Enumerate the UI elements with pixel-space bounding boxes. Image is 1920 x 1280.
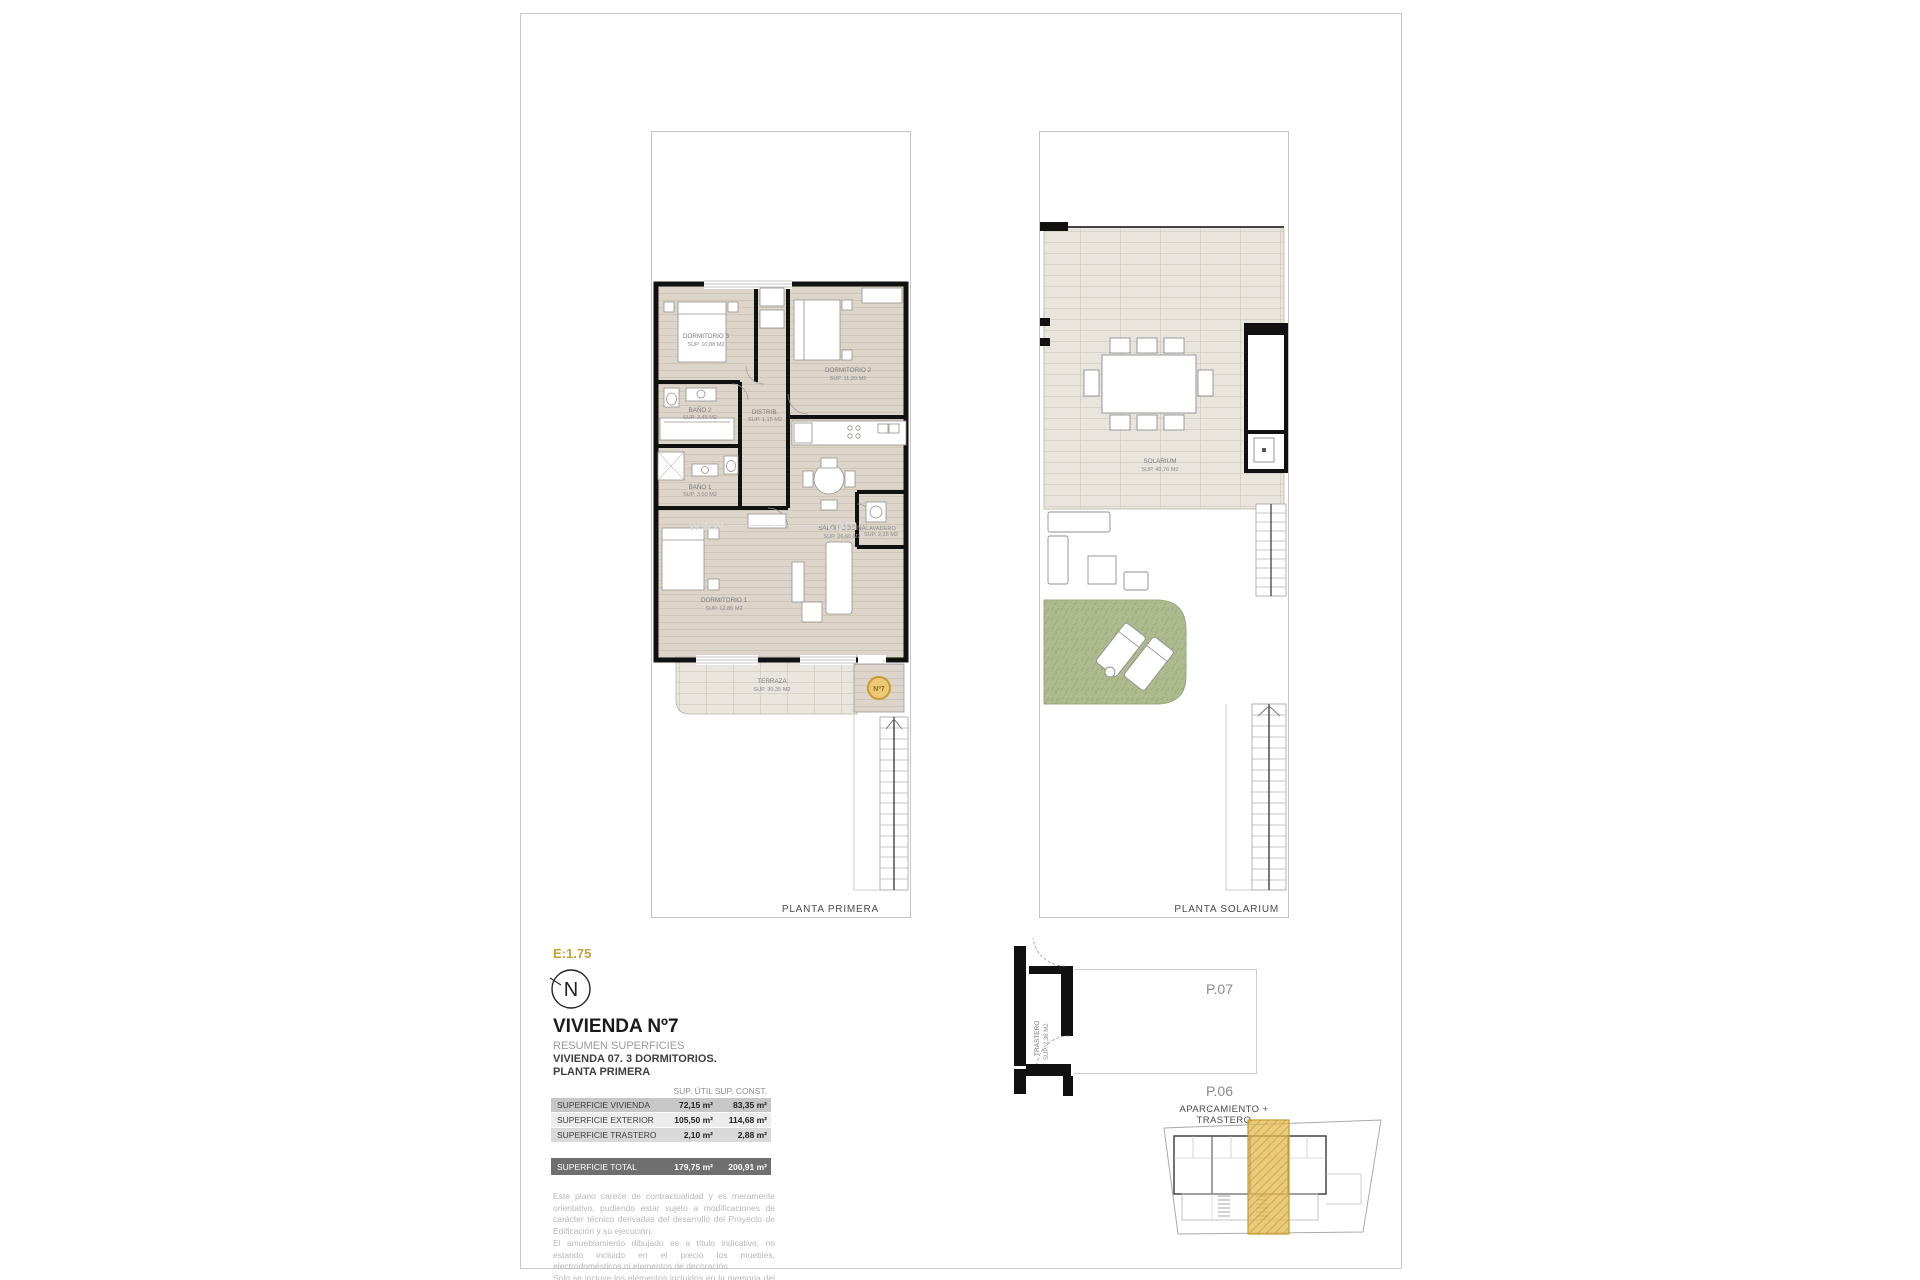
stairs-lower <box>1226 704 1286 890</box>
unit-badge-label: Nº7 <box>873 686 885 693</box>
caption-planta-solarium: PLANTA SOLARIUM <box>1039 904 1287 915</box>
bed-dorm1 <box>662 528 704 590</box>
title-floor-line: PLANTA PRIMERA <box>553 1066 650 1078</box>
svg-text:SUP. 30,35 M2: SUP. 30,35 M2 <box>753 687 790 693</box>
garden-area <box>1044 600 1186 704</box>
site-key-plan <box>1156 1114 1401 1254</box>
areas-table-header: SUP. ÚTIL SUP. CONST. <box>551 1086 771 1098</box>
lounge-furniture <box>1048 512 1148 590</box>
dining-table <box>814 464 844 494</box>
parking-divider-line <box>1074 1073 1256 1074</box>
table-row: SUPERFICIE EXTERIOR 105,50 m² 114,68 m² <box>551 1113 771 1127</box>
bed-dorm2 <box>794 300 840 360</box>
bed-dorm3 <box>678 302 726 362</box>
table-row: SUPERFICIE TRASTERO 2,10 m² 2,88 m² <box>551 1128 771 1142</box>
disclaimer-paragraph: Solo se incluye los elementos incluidos … <box>553 1273 775 1280</box>
north-arrow: N <box>547 966 593 1012</box>
stairs-first-floor <box>854 712 908 890</box>
bathtub <box>660 418 734 440</box>
disclaimer-paragraph: El amueblamiento dibujado es a título in… <box>553 1238 775 1273</box>
solarium-plan-svg: SOLARIUM SUP. 40,76 M2 <box>1040 132 1288 917</box>
trastero-label: TRASTERO <box>1034 1021 1041 1056</box>
col-sup-util: SUP. ÚTIL <box>657 1086 713 1098</box>
svg-text:DORMITORIO 2: DORMITORIO 2 <box>825 367 872 374</box>
title-dwelling-line: VIVIENDA 07. 3 DORMITORIOS. <box>553 1053 717 1065</box>
scale-label: E:1.75 <box>553 946 591 961</box>
svg-text:SUP. 11,20 M2: SUP. 11,20 M2 <box>830 376 867 382</box>
stairs-to-solarium <box>1256 504 1286 596</box>
svg-text:SOLARIUM: SOLARIUM <box>1144 458 1177 465</box>
svg-text:SUP. 3,45 M2: SUP. 3,45 M2 <box>683 415 717 421</box>
svg-text:SUP. 1,15 M2: SUP. 1,15 M2 <box>748 417 782 423</box>
svg-text:BAÑO 2: BAÑO 2 <box>688 405 712 414</box>
watermark: www.────────.com <box>689 517 929 534</box>
trastero-area-label: SUP. 2,36 M2 <box>1044 1023 1050 1060</box>
trastero-walls <box>1014 946 1073 1096</box>
page-subtitle: RESUMEN SUPERFICIES <box>553 1040 684 1052</box>
svg-text:SUP. 12,85 M2: SUP. 12,85 M2 <box>705 606 742 612</box>
plan-sheet-page: Nº7 DORMITORIO 3 SUP. 10,88 M2 DORMITORI… <box>520 13 1402 1269</box>
entry-landing: Nº7 <box>854 664 904 712</box>
svg-text:SUP. 10,88 M2: SUP. 10,88 M2 <box>687 342 724 348</box>
north-letter: N <box>564 979 578 1001</box>
parking-space-p07: P.07 <box>1206 981 1233 997</box>
table-total-row: SUPERFICIE TOTAL 179,75 m² 200,91 m² <box>551 1158 771 1175</box>
page-title: VIVIENDA Nº7 <box>553 1016 679 1038</box>
parking-boundary-line <box>1256 969 1257 1074</box>
terrace-area <box>676 657 857 714</box>
screenshot-canvas: Nº7 DORMITORIO 3 SUP. 10,88 M2 DORMITORI… <box>0 0 1920 1280</box>
sofa-b <box>1048 536 1068 584</box>
armchair <box>1124 572 1148 590</box>
closet <box>760 288 784 306</box>
sofa <box>826 542 852 614</box>
svg-text:SUP. 26,60 M2: SUP. 26,60 M2 <box>823 534 860 540</box>
svg-text:SUP. 3,50 M2: SUP. 3,50 M2 <box>683 492 717 498</box>
parking-divider-line <box>1074 969 1256 970</box>
caption-planta-primera: PLANTA PRIMERA <box>651 904 909 915</box>
svg-text:BAÑO 1: BAÑO 1 <box>688 482 712 491</box>
coffee-table <box>1088 556 1116 584</box>
tv-unit <box>792 562 804 602</box>
trastero-plan: TRASTERO SUP. 2,36 M2 <box>1009 938 1079 1114</box>
parking-space-p06: P.06 <box>1206 1083 1233 1099</box>
unit-highlight-strip <box>1248 1120 1289 1234</box>
legal-disclaimer: Este plano carece de contractualidad y e… <box>553 1191 775 1280</box>
fridge <box>794 423 812 443</box>
wardrobe-dorm2 <box>862 288 902 303</box>
disclaimer-paragraph: Este plano carece de contractualidad y e… <box>553 1191 775 1238</box>
svg-text:SUP. 40,76 M2: SUP. 40,76 M2 <box>1141 467 1178 473</box>
svg-text:DORMITORIO 3: DORMITORIO 3 <box>683 333 730 340</box>
svg-text:DISTRIB.: DISTRIB. <box>752 409 779 416</box>
coffee-table <box>802 602 822 622</box>
sofa-a <box>1048 512 1110 532</box>
chimney-block <box>1246 325 1286 471</box>
col-sup-const: SUP. CONST. <box>713 1086 771 1098</box>
svg-text:TERRAZA: TERRAZA <box>757 678 787 685</box>
solarium-plan-frame: SOLARIUM SUP. 40,76 M2 <box>1039 131 1289 918</box>
svg-text:DORMITORIO 1: DORMITORIO 1 <box>701 597 748 604</box>
dining-table <box>1102 355 1196 413</box>
areas-table: SUP. ÚTIL SUP. CONST. SUPERFICIE VIVIEND… <box>551 1086 771 1175</box>
table-row: SUPERFICIE VIVIENDA 72,15 m² 83,35 m² <box>551 1098 771 1112</box>
